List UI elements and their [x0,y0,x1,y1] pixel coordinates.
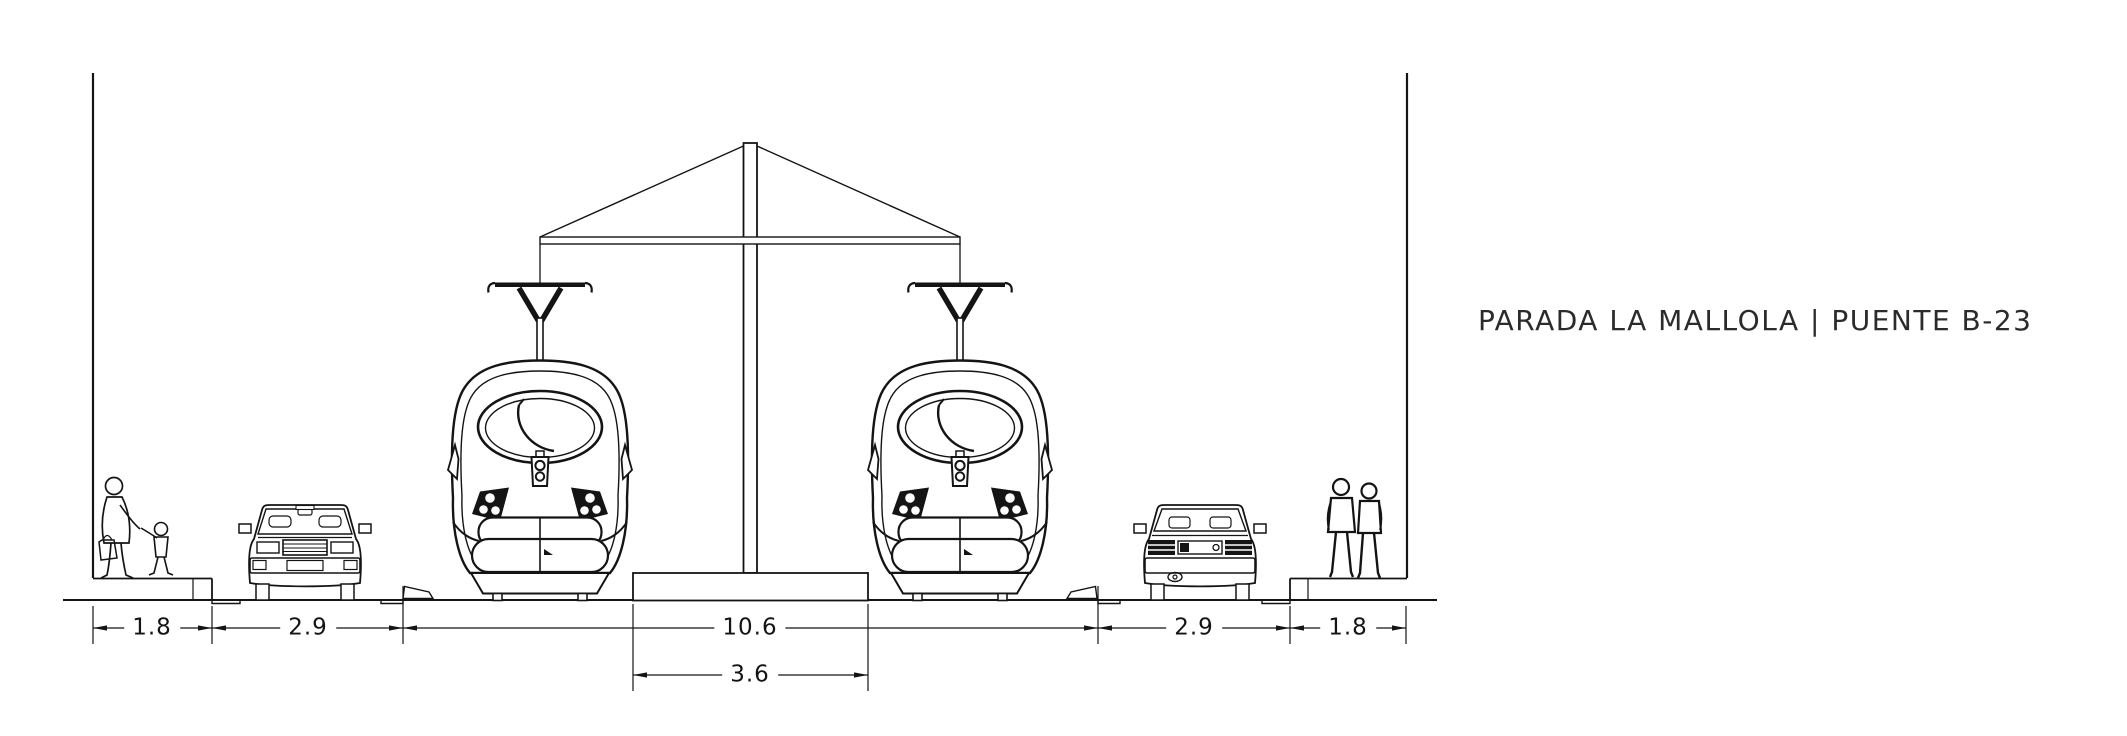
dim-central-platform: 3.6 [722,662,778,687]
dim-right-lane: 2.9 [1166,615,1222,640]
sidewalk-right [1290,579,1407,601]
dim-left-sidewalk: 1.8 [124,615,180,640]
central-platform [633,573,868,601]
drawing-title: PARADA LA MALLOLA | PUENTE B-23 [1478,304,2032,337]
roof-slope-right [757,146,960,237]
tail-light [1225,540,1252,555]
shelter-column [744,143,758,573]
roof-slope-left [540,146,744,237]
sidewalk-left [93,579,212,601]
car-front-view [239,505,371,600]
car-wheel [341,584,354,600]
dim-track-zone: 10.6 [714,615,785,640]
car-wheel [1151,584,1164,600]
technical-drawing-canvas: 1.8 2.9 10.6 3.6 2.9 1.8 PARADA LA MALLO… [0,0,2127,736]
dim-left-lane: 2.9 [280,615,336,640]
tail-light [1148,540,1175,555]
pedestrians-woman-child [99,478,173,579]
car-rear-view [1134,505,1266,600]
pedestrians-couple [1328,479,1382,578]
track-curb-right [1067,587,1097,599]
tram-right [868,283,1052,601]
tram-left [448,283,632,601]
track-curb-left [403,587,433,599]
car-wheel [256,584,269,600]
canopy-beam [540,237,960,244]
dim-right-sidewalk: 1.8 [1320,615,1376,640]
car-wheel [1236,584,1249,600]
